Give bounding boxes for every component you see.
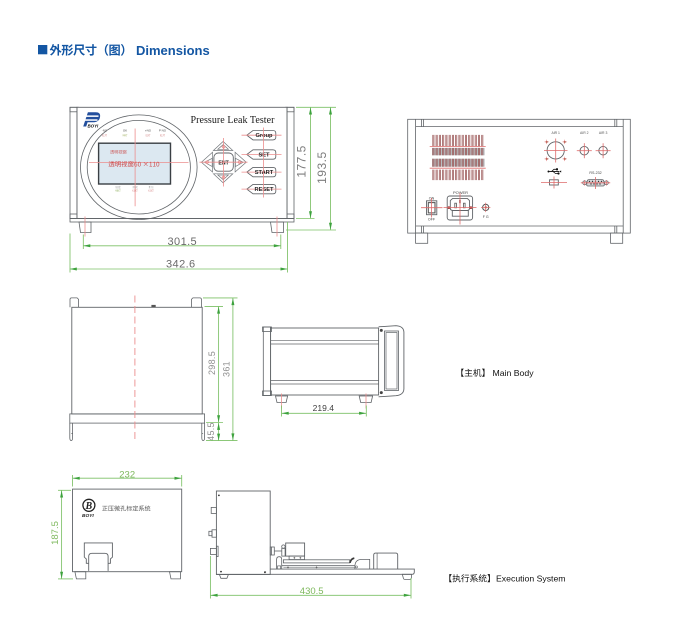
svg-text:RS-232: RS-232 [589, 171, 601, 175]
svg-text:187.5: 187.5 [50, 521, 61, 545]
svg-text:219.4: 219.4 [313, 403, 335, 413]
svg-text:B: B [85, 501, 93, 512]
svg-text:Pressure Leak Tester: Pressure Leak Tester [191, 115, 276, 126]
svg-text:AIR 2: AIR 2 [580, 131, 589, 135]
svg-text:177.5: 177.5 [295, 145, 309, 178]
svg-text:342.6: 342.6 [166, 259, 196, 271]
svg-text:P NG: P NG [159, 129, 167, 133]
svg-text:301.5: 301.5 [168, 236, 198, 248]
svg-text:+NG: +NG [145, 129, 152, 133]
svg-text:BOYI: BOYI [88, 123, 100, 128]
svg-text:232: 232 [119, 469, 135, 480]
svg-text:-NG: -NG [102, 129, 108, 133]
svg-text:AIR 1: AIR 1 [551, 131, 560, 135]
svg-text:RESET: RESET [255, 187, 274, 193]
svg-text:361: 361 [221, 361, 231, 377]
svg-text:430.5: 430.5 [300, 586, 324, 597]
svg-text:START: START [255, 170, 274, 176]
svg-text:ENT: ENT [218, 160, 229, 166]
svg-text:Execution System: Execution System [496, 574, 566, 584]
svg-text:F G: F G [483, 215, 489, 219]
svg-text:POWER: POWER [453, 190, 468, 195]
svg-text:OK: OK [123, 129, 127, 133]
svg-text:BOYI: BOYI [82, 513, 94, 519]
svg-text:Main Body: Main Body [493, 368, 535, 378]
svg-text:45.5: 45.5 [206, 422, 216, 441]
svg-text:Dimensions: Dimensions [136, 43, 210, 58]
svg-text:SET: SET [258, 152, 270, 158]
svg-text:193.5: 193.5 [315, 151, 329, 184]
svg-text:298.5: 298.5 [207, 351, 217, 375]
svg-text:Group: Group [255, 133, 273, 139]
svg-text:AIR 3: AIR 3 [599, 131, 608, 135]
svg-text:OFF: OFF [428, 218, 436, 222]
